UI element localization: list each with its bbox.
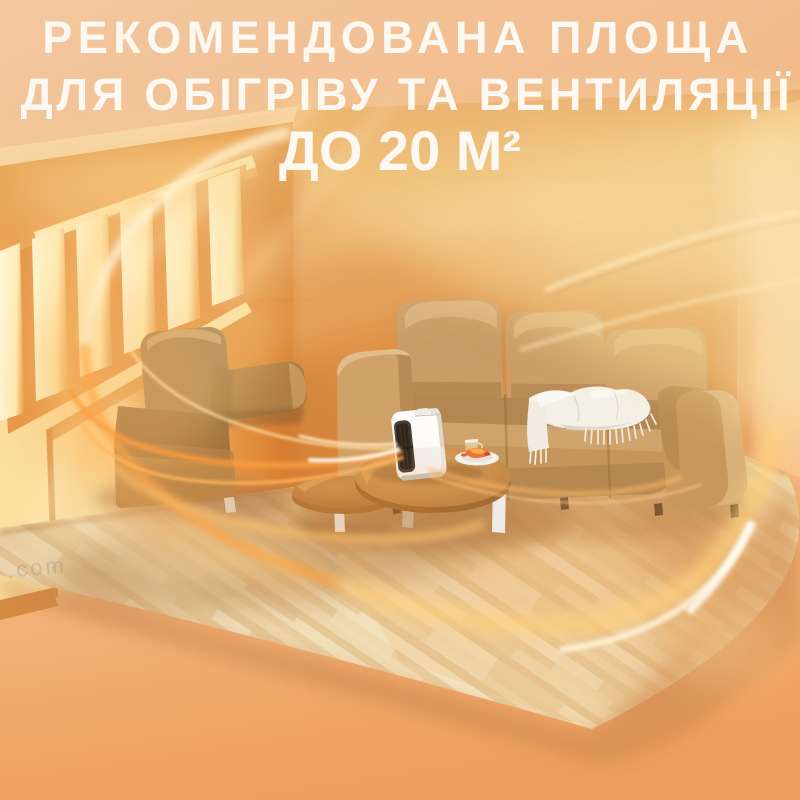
svg-text:ДЛЯ ОБІГРІВУ ТА ВЕНТИЛЯЦІЇ: ДЛЯ ОБІГРІВУ ТА ВЕНТИЛЯЦІЇ <box>21 69 794 120</box>
svg-text:РЕКОМЕНДОВАНА ПЛОЩА: РЕКОМЕНДОВАНА ПЛОЩА <box>42 12 754 63</box>
svg-text:ДО 20 М²: ДО 20 М² <box>279 119 521 182</box>
